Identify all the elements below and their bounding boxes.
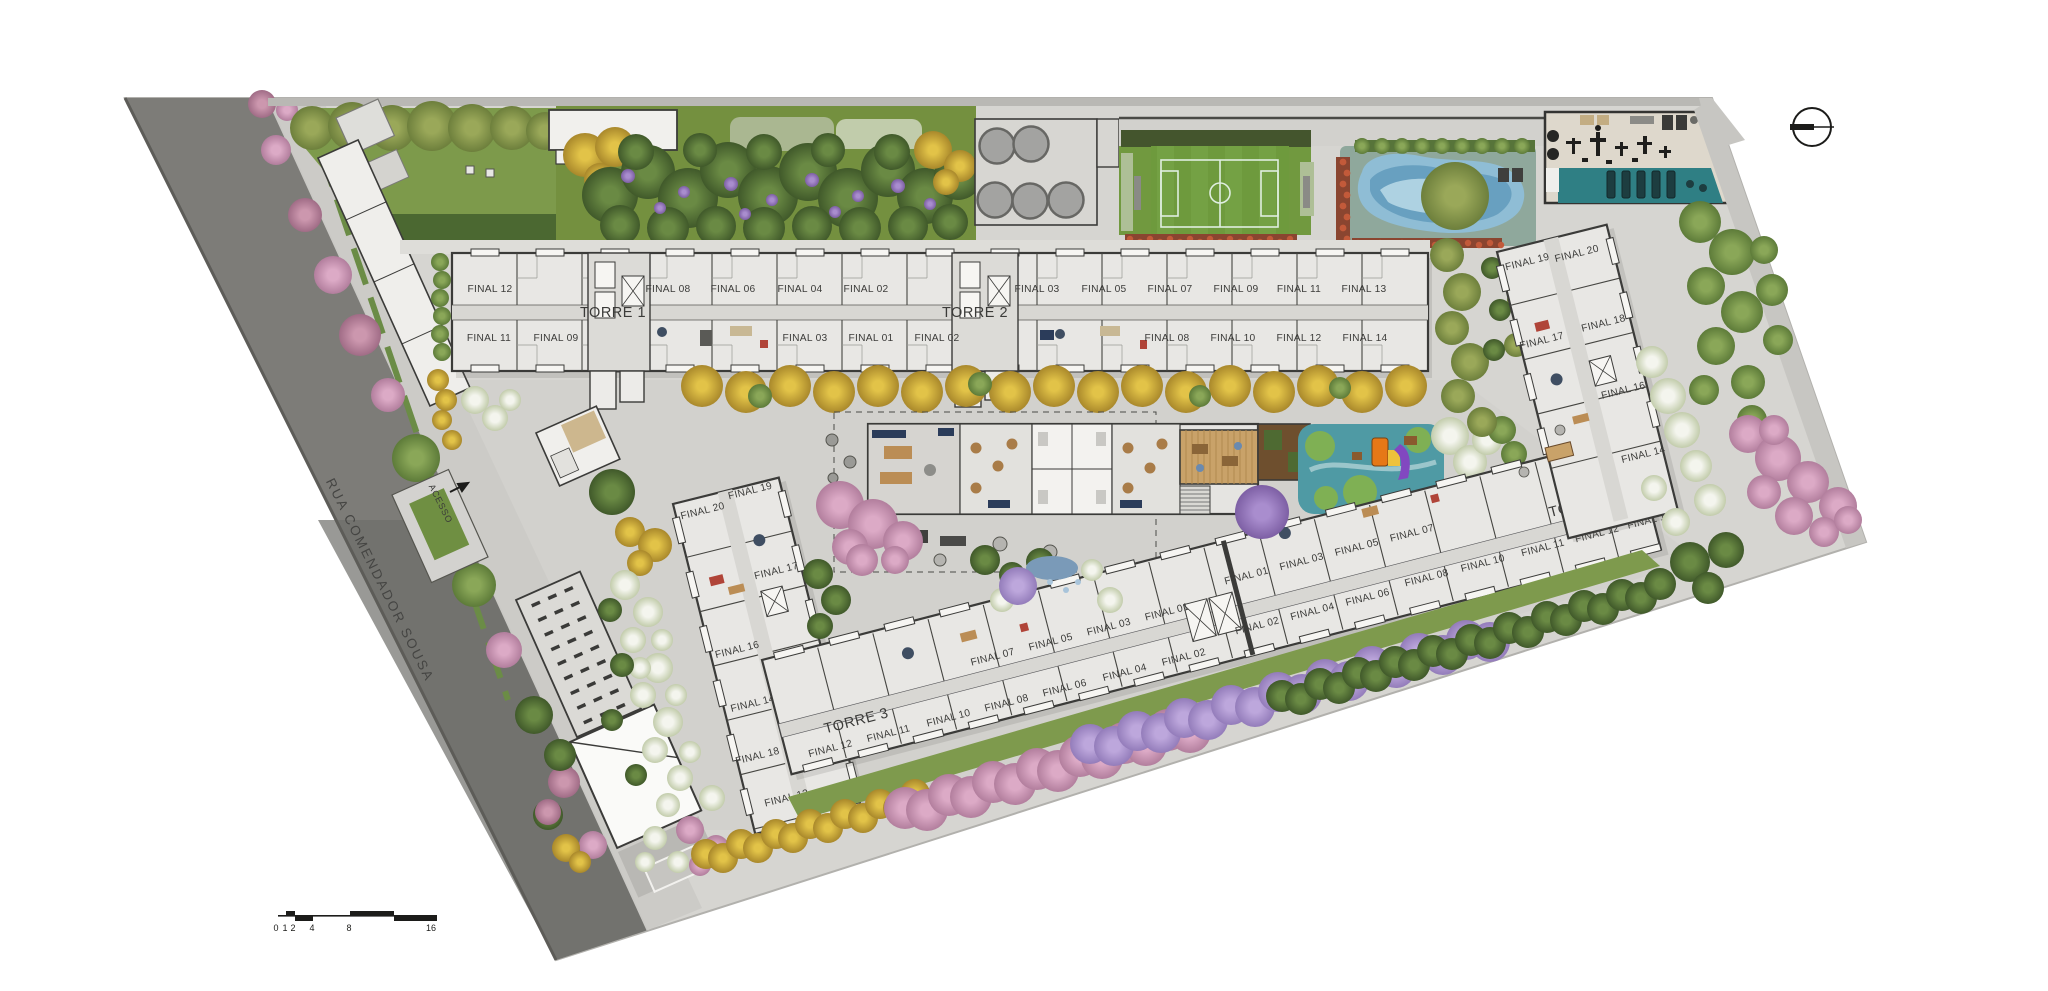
svg-text:FINAL 03: FINAL 03 <box>1014 284 1059 295</box>
svg-text:TORRE 1: TORRE 1 <box>580 305 646 321</box>
svg-text:TORRE 2: TORRE 2 <box>942 305 1008 321</box>
svg-text:FINAL 13: FINAL 13 <box>1341 284 1386 295</box>
svg-text:1: 1 <box>282 923 287 933</box>
svg-text:8: 8 <box>346 923 351 933</box>
svg-text:FINAL 05: FINAL 05 <box>1081 284 1126 295</box>
svg-text:0: 0 <box>273 923 278 933</box>
svg-text:FINAL 11: FINAL 11 <box>1277 284 1321 295</box>
svg-text:FINAL 08: FINAL 08 <box>645 284 690 295</box>
svg-text:FINAL 02: FINAL 02 <box>914 333 959 344</box>
svg-text:16: 16 <box>426 923 436 933</box>
svg-text:2: 2 <box>290 923 295 933</box>
svg-text:FINAL 02: FINAL 02 <box>843 284 888 295</box>
svg-text:FINAL 01: FINAL 01 <box>848 333 893 344</box>
svg-text:FINAL 04: FINAL 04 <box>777 284 822 295</box>
svg-text:FINAL 06: FINAL 06 <box>710 284 755 295</box>
svg-text:FINAL 07: FINAL 07 <box>1147 284 1192 295</box>
svg-text:FINAL 10: FINAL 10 <box>1210 333 1255 344</box>
svg-text:FINAL 12: FINAL 12 <box>1276 333 1321 344</box>
svg-text:FINAL 09: FINAL 09 <box>1213 284 1258 295</box>
svg-text:FINAL 14: FINAL 14 <box>1342 333 1387 344</box>
svg-text:4: 4 <box>309 923 314 933</box>
svg-text:FINAL 08: FINAL 08 <box>1144 333 1189 344</box>
svg-text:FINAL 09: FINAL 09 <box>533 333 578 344</box>
svg-text:FINAL 03: FINAL 03 <box>782 333 827 344</box>
svg-text:FINAL 12: FINAL 12 <box>467 284 512 295</box>
svg-text:FINAL 11: FINAL 11 <box>467 333 511 344</box>
